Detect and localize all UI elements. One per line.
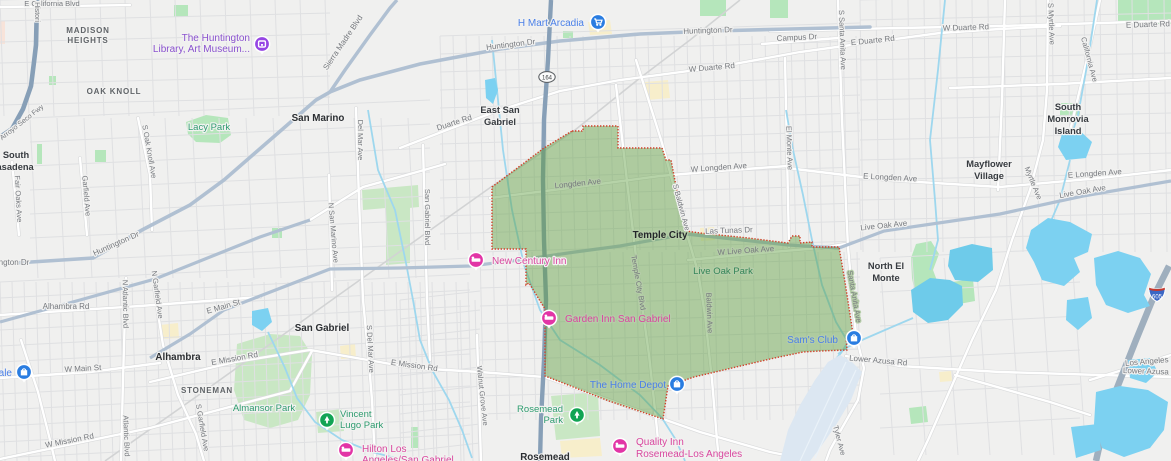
svg-text:ngton Dr: ngton Dr	[0, 258, 30, 267]
svg-text:ale: ale	[0, 368, 12, 379]
svg-text:Sam's Club: Sam's Club	[787, 335, 838, 346]
svg-text:Hilton Los: Hilton Los	[362, 444, 406, 455]
svg-text:HEIGHTS: HEIGHTS	[67, 36, 108, 45]
svg-text:H Mart Arcadia: H Mart Arcadia	[518, 18, 585, 29]
svg-text:Histori: Histori	[33, 2, 40, 22]
svg-text:S Myrtle Ave: S Myrtle Ave	[1046, 3, 1056, 45]
svg-text:Almansor Park: Almansor Park	[233, 403, 296, 414]
svg-text:E California Blvd: E California Blvd	[24, 0, 79, 8]
svg-text:Park: Park	[543, 415, 563, 426]
svg-text:South: South	[3, 150, 30, 160]
svg-text:New Century Inn: New Century Inn	[492, 256, 566, 267]
svg-text:San Marino: San Marino	[292, 113, 345, 124]
svg-text:San Gabriel Blvd: San Gabriel Blvd	[423, 189, 432, 245]
svg-text:The Huntington: The Huntington	[182, 33, 250, 44]
svg-text:North El: North El	[868, 261, 904, 271]
svg-text:Baldwin Ave: Baldwin Ave	[704, 292, 714, 333]
svg-text:STONEMAN: STONEMAN	[181, 386, 233, 395]
svg-text:Lugo Park: Lugo Park	[340, 420, 384, 431]
svg-text:Huntington Dr: Huntington Dr	[683, 25, 733, 36]
svg-text:Island: Island	[1055, 126, 1082, 136]
svg-text:Vincent: Vincent	[340, 409, 372, 420]
svg-text:Monte: Monte	[872, 273, 899, 283]
svg-text:Lacy Park: Lacy Park	[188, 122, 230, 133]
svg-text:The Home Depot: The Home Depot	[590, 380, 666, 391]
svg-text:South: South	[1055, 102, 1082, 112]
svg-text:W Duarte Rd: W Duarte Rd	[943, 22, 990, 33]
svg-text:E Duarte Rd: E Duarte Rd	[1126, 19, 1170, 30]
svg-text:Rosemead-Los Angeles: Rosemead-Los Angeles	[636, 449, 742, 460]
svg-text:Angeles/San Gabriel: Angeles/San Gabriel	[362, 455, 454, 461]
svg-text:MADISON: MADISON	[66, 26, 109, 35]
svg-text:Rosemead: Rosemead	[517, 404, 563, 415]
svg-text:Quality Inn: Quality Inn	[636, 437, 684, 448]
svg-text:Pasadena: Pasadena	[0, 162, 35, 172]
svg-text:East San: East San	[480, 105, 520, 115]
svg-text:Gabriel: Gabriel	[484, 117, 516, 127]
svg-text:Alhambra: Alhambra	[155, 352, 201, 363]
svg-text:N Atlantic Blvd: N Atlantic Blvd	[121, 280, 131, 329]
svg-text:164: 164	[542, 76, 553, 82]
svg-text:Del Mar Ave: Del Mar Ave	[356, 120, 365, 161]
svg-text:605: 605	[1152, 295, 1163, 301]
svg-text:Temple City: Temple City	[633, 230, 688, 241]
svg-text:Live Oak Park: Live Oak Park	[693, 266, 753, 277]
svg-text:San Gabriel: San Gabriel	[295, 323, 350, 334]
svg-text:El Monte Ave: El Monte Ave	[784, 126, 795, 170]
svg-text:Mayflower: Mayflower	[966, 159, 1012, 169]
svg-text:Library, Art Museum...: Library, Art Museum...	[153, 44, 250, 55]
svg-text:Village: Village	[974, 171, 1004, 181]
svg-text:Atlantic Blvd: Atlantic Blvd	[121, 415, 131, 457]
svg-text:Las Tunas Dr: Las Tunas Dr	[705, 225, 753, 236]
svg-text:OAK KNOLL: OAK KNOLL	[87, 87, 142, 96]
svg-text:Monrovia: Monrovia	[1047, 114, 1089, 124]
svg-text:Alhambra Rd: Alhambra Rd	[43, 302, 90, 311]
svg-text:Rosemead: Rosemead	[520, 452, 570, 461]
svg-text:Garden Inn San Gabriel: Garden Inn San Gabriel	[565, 314, 671, 325]
